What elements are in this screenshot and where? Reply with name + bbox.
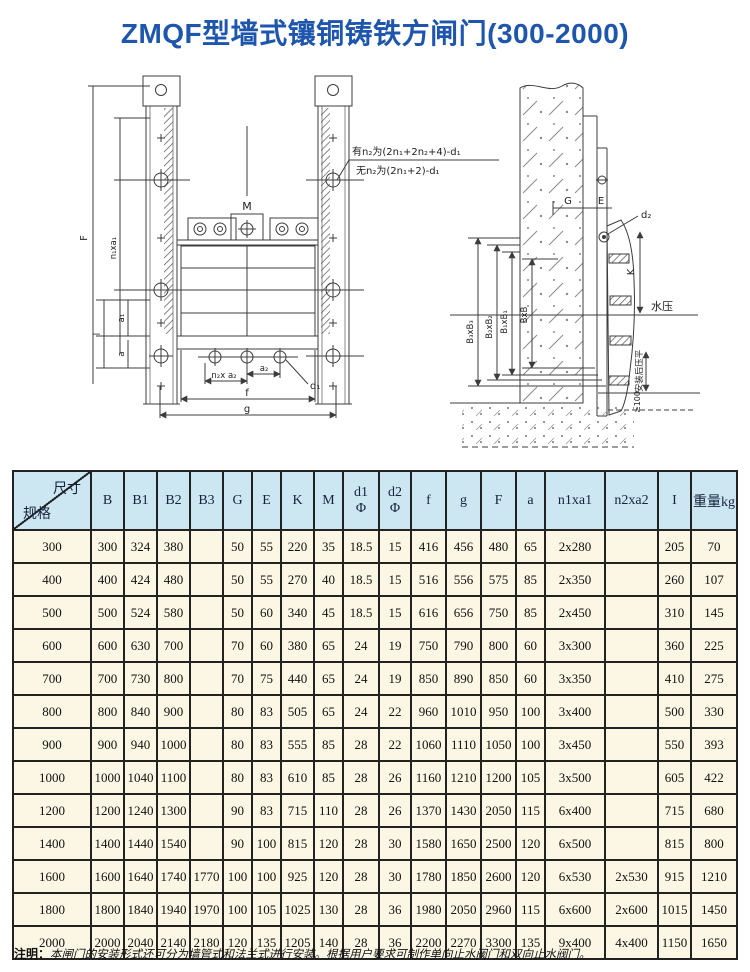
col-header: B [91, 471, 124, 530]
table-cell: 220 [281, 530, 314, 563]
table-cell: 24 [343, 662, 379, 695]
table-cell: 1000 [91, 761, 124, 794]
table-cell: 60 [516, 662, 545, 695]
table-cell: 45 [314, 596, 343, 629]
table-row: 1800180018401940197010010510251302836198… [13, 893, 737, 926]
table-cell: 65 [314, 629, 343, 662]
table-cell: 750 [481, 596, 516, 629]
table-cell: 950 [481, 695, 516, 728]
table-row: 1400140014401540901008151202830158016502… [13, 827, 737, 860]
label-a1: a₁ [117, 314, 127, 323]
table-cell: 605 [658, 761, 691, 794]
spec-table: 尺寸 规格 BB1B2B3GEKMd1 Φd2 ΦfgFan1xa1n2xa2I… [12, 470, 738, 960]
table-cell [605, 695, 658, 728]
table-cell [605, 662, 658, 695]
table-cell: 1060 [411, 728, 446, 761]
table-cell: 40 [314, 563, 343, 596]
table-cell: 815 [658, 827, 691, 860]
table-cell: 730 [124, 662, 157, 695]
table-cell [605, 629, 658, 662]
table-cell: 270 [281, 563, 314, 596]
table-cell: 1780 [411, 860, 446, 893]
table-cell: 330 [691, 695, 737, 728]
table-cell: 115 [516, 893, 545, 926]
footnote-text: 本闸门的安装形式还可分为墙管式和法兰式进行安装。根据用户要求可制作单向止水阀门和… [50, 949, 591, 961]
table-cell: 90 [223, 794, 252, 827]
table-cell: 85 [314, 761, 343, 794]
table-cell: 505 [281, 695, 314, 728]
label-B2xB2: B₂xB₂ [485, 315, 495, 339]
table-cell: 105 [516, 761, 545, 794]
table-cell: 440 [281, 662, 314, 695]
table-cell: 3x450 [545, 728, 605, 761]
table-cell: 15 [379, 530, 411, 563]
table-cell: 36 [379, 893, 411, 926]
table-cell: 3x350 [545, 662, 605, 695]
table-cell: 26 [379, 761, 411, 794]
annotation-without-n2: 无n₂为(2n₁+2)-d₁ [356, 165, 440, 177]
col-header: f [411, 471, 446, 530]
table-cell: 30 [379, 827, 411, 860]
table-cell: 19 [379, 629, 411, 662]
table-cell: 83 [252, 761, 281, 794]
table-cell: 15 [379, 563, 411, 596]
table-cell: 1770 [190, 860, 223, 893]
table-cell: 15 [379, 596, 411, 629]
table-cell: 960 [411, 695, 446, 728]
col-header: B3 [190, 471, 223, 530]
label-BxB: BxB [520, 306, 530, 323]
label-l: l [93, 333, 103, 335]
table-cell: 790 [446, 629, 481, 662]
table-cell: 500 [658, 695, 691, 728]
wall-frame [583, 116, 608, 416]
table-cell [190, 728, 223, 761]
table-cell: 900 [157, 695, 190, 728]
table-cell: 55 [252, 530, 281, 563]
table-cell: 1940 [157, 893, 190, 926]
table-cell: 656 [446, 596, 481, 629]
table-cell: 65 [516, 530, 545, 563]
table-cell: 400 [91, 563, 124, 596]
table-cell [605, 761, 658, 794]
col-header: d1 Φ [343, 471, 379, 530]
table-cell: 83 [252, 728, 281, 761]
table-cell: 600 [91, 629, 124, 662]
concrete-wall [520, 83, 583, 403]
table-cell: 50 [223, 530, 252, 563]
label-g-width: g [244, 404, 250, 415]
table-cell: 28 [343, 728, 379, 761]
table-row: 40040042448050552704018.515516556575852x… [13, 563, 737, 596]
table-cell: 2x350 [545, 563, 605, 596]
table-cell: 915 [658, 860, 691, 893]
table-cell: 340 [281, 596, 314, 629]
table-cell: 18.5 [343, 596, 379, 629]
table-cell: 205 [658, 530, 691, 563]
table-cell: 2x450 [545, 596, 605, 629]
table-cell: 610 [281, 761, 314, 794]
table-cell: 680 [691, 794, 737, 827]
page: { "page": { "title": "ZMQF型墙式镶铜铸铁方闸门(300… [0, 0, 750, 972]
table-cell: 2960 [481, 893, 516, 926]
label-E: E [598, 196, 604, 207]
label-water-pressure: 水压 [651, 300, 673, 313]
table-cell: 925 [281, 860, 314, 893]
table-cell: 90 [223, 827, 252, 860]
table-cell: 6x530 [545, 860, 605, 893]
table-cell [605, 827, 658, 860]
table-cell: 800 [481, 629, 516, 662]
table-cell: 500 [91, 596, 124, 629]
col-header: g [446, 471, 481, 530]
table-cell: 424 [124, 563, 157, 596]
table-cell: 700 [91, 662, 124, 695]
table-cell: 1440 [124, 827, 157, 860]
col-header: E [252, 471, 281, 530]
table-cell [605, 596, 658, 629]
table-cell [605, 563, 658, 596]
table-cell: 393 [691, 728, 737, 761]
table-cell: 550 [658, 728, 691, 761]
label-K: K [626, 268, 637, 275]
right-guide-rail [315, 76, 352, 404]
col-header: n2xa2 [605, 471, 658, 530]
col-header: K [281, 471, 314, 530]
footnote-label: 注明： [14, 947, 50, 961]
table-cell: 28 [343, 860, 379, 893]
table-cell: 60 [252, 596, 281, 629]
table-cell [605, 530, 658, 563]
col-header: I [658, 471, 691, 530]
label-min100: ≥100 [633, 391, 642, 413]
table-cell: 2x280 [545, 530, 605, 563]
table-cell: 1100 [157, 761, 190, 794]
table-cell: 800 [691, 827, 737, 860]
table-cell: 85 [516, 596, 545, 629]
table-cell: 1210 [446, 761, 481, 794]
table-cell: 18.5 [343, 530, 379, 563]
table-row: 1600160016401740177010010092512028301780… [13, 860, 737, 893]
col-header: a [516, 471, 545, 530]
table-cell: 3x400 [545, 695, 605, 728]
row-spec: 1600 [13, 860, 91, 893]
table-cell: 120 [314, 827, 343, 860]
table-cell: 422 [691, 761, 737, 794]
table-cell: 100 [252, 860, 281, 893]
table-cell: 2x530 [605, 860, 658, 893]
table-cell: 2x600 [605, 893, 658, 926]
table-cell: 80 [223, 695, 252, 728]
col-header: 重量kg [691, 471, 737, 530]
table-cell: 1200 [91, 794, 124, 827]
row-spec: 400 [13, 563, 91, 596]
table-cell: 50 [223, 563, 252, 596]
table-cell: 225 [691, 629, 737, 662]
table-cell: 1400 [91, 827, 124, 860]
table-cell: 80 [223, 761, 252, 794]
table-cell: 28 [343, 794, 379, 827]
table-cell: 75 [252, 662, 281, 695]
table-cell: 6x600 [545, 893, 605, 926]
col-header: n1xa1 [545, 471, 605, 530]
table-cell: 1840 [124, 893, 157, 926]
table-cell: 70 [691, 530, 737, 563]
table-row: 1200120012401300908371511028261370143020… [13, 794, 737, 827]
table-cell: 890 [446, 662, 481, 695]
table-cell: 1970 [190, 893, 223, 926]
label-n2xa2: n₂x a₂ [211, 371, 236, 381]
label-f-width: f [245, 388, 249, 399]
table-cell: 516 [411, 563, 446, 596]
table-cell: 28 [343, 761, 379, 794]
table-cell: 100 [252, 827, 281, 860]
table-cell: 35 [314, 530, 343, 563]
col-header: B2 [157, 471, 190, 530]
table-cell: 850 [411, 662, 446, 695]
table-cell: 6x500 [545, 827, 605, 860]
table-cell: 50 [223, 596, 252, 629]
table-cell: 480 [157, 563, 190, 596]
table-cell: 22 [379, 695, 411, 728]
table-cell: 19 [379, 662, 411, 695]
row-spec: 1800 [13, 893, 91, 926]
table-cell: 107 [691, 563, 737, 596]
table-cell: 700 [157, 629, 190, 662]
table-cell: 380 [157, 530, 190, 563]
technical-drawings: F n₁xa₁ l a₁ a M a₂ n₂x a₂ d₁ f g 有n₂为(2… [0, 68, 750, 468]
table-cell: 22 [379, 728, 411, 761]
table-cell: 3x300 [545, 629, 605, 662]
table-cell: 6x400 [545, 794, 605, 827]
table-cell: 70 [223, 629, 252, 662]
table-cell: 524 [124, 596, 157, 629]
table-cell: 416 [411, 530, 446, 563]
table-header-row: 尺寸 规格 BB1B2B3GEKMd1 Φd2 ΦfgFan1xa1n2xa2I… [13, 471, 737, 530]
label-d2: d₂ [641, 210, 651, 221]
table-body: 30030032438050552203518.515416456480652x… [13, 530, 737, 959]
table-cell: 456 [446, 530, 481, 563]
label-B3xB3: B₃xB₃ [466, 320, 476, 344]
table-cell: 1580 [411, 827, 446, 860]
label-n1xa1: n₁xa₁ [109, 237, 119, 259]
table-cell: 1800 [91, 893, 124, 926]
table-cell: 1850 [446, 860, 481, 893]
table-cell: 750 [411, 629, 446, 662]
table-cell [190, 530, 223, 563]
table-cell: 1210 [691, 860, 737, 893]
table-cell: 85 [516, 563, 545, 596]
table-row: 1000100010401100808361085282611601210120… [13, 761, 737, 794]
table-corner-cell: 尺寸 规格 [13, 471, 91, 530]
table-cell: 580 [157, 596, 190, 629]
row-spec: 300 [13, 530, 91, 563]
table-cell: 18.5 [343, 563, 379, 596]
corner-label-size: 尺寸 [53, 478, 81, 498]
table-cell: 1980 [411, 893, 446, 926]
table-cell: 1300 [157, 794, 190, 827]
table-cell: 1650 [446, 827, 481, 860]
table-cell: 1200 [481, 761, 516, 794]
label-m: M [242, 200, 252, 213]
table-cell: 100 [223, 860, 252, 893]
table-cell: 2050 [481, 794, 516, 827]
table-cell: 1540 [157, 827, 190, 860]
label-f-dim: F [79, 235, 90, 241]
table-cell: 2050 [446, 893, 481, 926]
table-cell: 1110 [446, 728, 481, 761]
table-cell: 410 [658, 662, 691, 695]
corner-label-spec: 规格 [23, 503, 51, 523]
label-d1: d₁ [310, 381, 320, 392]
row-spec: 600 [13, 629, 91, 662]
table-cell [190, 827, 223, 860]
table-cell: 1370 [411, 794, 446, 827]
gate-leaf-grid [177, 246, 318, 366]
table-row: 800800840900808350565242296010109501003x… [13, 695, 737, 728]
table-cell: 556 [446, 563, 481, 596]
table-cell: 360 [658, 629, 691, 662]
table-cell: 840 [124, 695, 157, 728]
table-cell: 1600 [91, 860, 124, 893]
table-cell [190, 629, 223, 662]
table-cell: 3x500 [545, 761, 605, 794]
table-cell: 815 [281, 827, 314, 860]
table-cell: 1040 [124, 761, 157, 794]
row-spec: 700 [13, 662, 91, 695]
table-cell: 65 [314, 695, 343, 728]
table-cell: 275 [691, 662, 737, 695]
table-cell: 715 [658, 794, 691, 827]
table-cell: 1160 [411, 761, 446, 794]
table-cell: 120 [314, 860, 343, 893]
table-cell: 110 [314, 794, 343, 827]
label-G: G [564, 196, 572, 207]
front-view-drawing: F n₁xa₁ l a₁ a M a₂ n₂x a₂ d₁ f g 有n₂为(2… [79, 76, 499, 418]
table-cell [190, 695, 223, 728]
row-spec: 500 [13, 596, 91, 629]
label-a: a [117, 351, 127, 356]
ground [450, 403, 634, 447]
row-spec: 800 [13, 695, 91, 728]
table-cell: 555 [281, 728, 314, 761]
table-cell: 2600 [481, 860, 516, 893]
annotation-with-n2: 有n₂为(2n₁+2n₂+4)-d₁ [352, 145, 461, 158]
table-cell: 1050 [481, 728, 516, 761]
lift-beam-assembly [177, 126, 318, 245]
table-cell: 55 [252, 563, 281, 596]
table-cell: 324 [124, 530, 157, 563]
table-cell [605, 794, 658, 827]
row-spec: 900 [13, 728, 91, 761]
table-cell: 940 [124, 728, 157, 761]
table-cell: 120 [516, 860, 545, 893]
row-spec: 1400 [13, 827, 91, 860]
col-header: B1 [124, 471, 157, 530]
table-row: 6006006307007060380652419750790800603x30… [13, 629, 737, 662]
table-cell: 1430 [446, 794, 481, 827]
table-cell: 1000 [157, 728, 190, 761]
table-cell: 575 [481, 563, 516, 596]
table-cell [190, 563, 223, 596]
table-cell: 60 [516, 629, 545, 662]
table-row: 9009009401000808355585282210601110105010… [13, 728, 737, 761]
table-cell [190, 596, 223, 629]
label-a2: a₂ [260, 364, 269, 374]
table-cell: 145 [691, 596, 737, 629]
table-cell: 28 [343, 893, 379, 926]
table-cell: 260 [658, 563, 691, 596]
table-cell: 900 [91, 728, 124, 761]
row-spec: 1000 [13, 761, 91, 794]
table-cell: 715 [281, 794, 314, 827]
table-cell: 1640 [124, 860, 157, 893]
table-cell: 1740 [157, 860, 190, 893]
label-B1xB1: B₁xB₁ [500, 310, 510, 334]
table-cell: 83 [252, 794, 281, 827]
table-cell: 800 [157, 662, 190, 695]
table-cell: 1025 [281, 893, 314, 926]
table-cell [190, 662, 223, 695]
table-cell: 120 [516, 827, 545, 860]
table-cell: 70 [223, 662, 252, 695]
page-title: ZMQF型墙式镶铜铸铁方闸门(300-2000) [0, 12, 750, 52]
table-cell: 380 [281, 629, 314, 662]
table-cell: 24 [343, 629, 379, 662]
table-cell: 616 [411, 596, 446, 629]
table-cell: 85 [314, 728, 343, 761]
table-cell [190, 794, 223, 827]
table-cell: 100 [516, 695, 545, 728]
table-cell: 24 [343, 695, 379, 728]
table-cell: 300 [91, 530, 124, 563]
table-cell: 30 [379, 860, 411, 893]
table-cell: 480 [481, 530, 516, 563]
table-cell: 100 [223, 893, 252, 926]
table-cell: 28 [343, 827, 379, 860]
table-cell: 65 [314, 662, 343, 695]
table-cell [190, 761, 223, 794]
row-spec: 1200 [13, 794, 91, 827]
table-cell: 1240 [124, 794, 157, 827]
left-guide-rail [143, 76, 180, 404]
table-cell: 130 [314, 893, 343, 926]
table-cell: 83 [252, 695, 281, 728]
table-cell: 2500 [481, 827, 516, 860]
col-header: F [481, 471, 516, 530]
side-view-drawing: G E d₂ 水压 K B₃xB₃ B₂xB₂ B₁xB₁ BxB 安装后压平 … [450, 83, 700, 447]
table-row: 7007007308007075440652419850890850603x35… [13, 662, 737, 695]
table-row: 50050052458050603404518.515616656750852x… [13, 596, 737, 629]
table-cell: 100 [516, 728, 545, 761]
table-cell: 80 [223, 728, 252, 761]
col-header: G [223, 471, 252, 530]
table-cell: 115 [516, 794, 545, 827]
table-cell: 1450 [691, 893, 737, 926]
col-header: M [314, 471, 343, 530]
label-flatten-after-install: 安装后压平 [634, 349, 645, 392]
table-cell: 1010 [446, 695, 481, 728]
table-cell: 850 [481, 662, 516, 695]
table-cell: 310 [658, 596, 691, 629]
table-cell [605, 728, 658, 761]
table-cell: 630 [124, 629, 157, 662]
table-row: 30030032438050552203518.515416456480652x… [13, 530, 737, 563]
table-cell: 60 [252, 629, 281, 662]
table-cell: 1015 [658, 893, 691, 926]
footnote: 注明：本闸门的安装形式还可分为墙管式和法兰式进行安装。根据用户要求可制作单向止水… [14, 945, 738, 962]
col-header: d2 Φ [379, 471, 411, 530]
